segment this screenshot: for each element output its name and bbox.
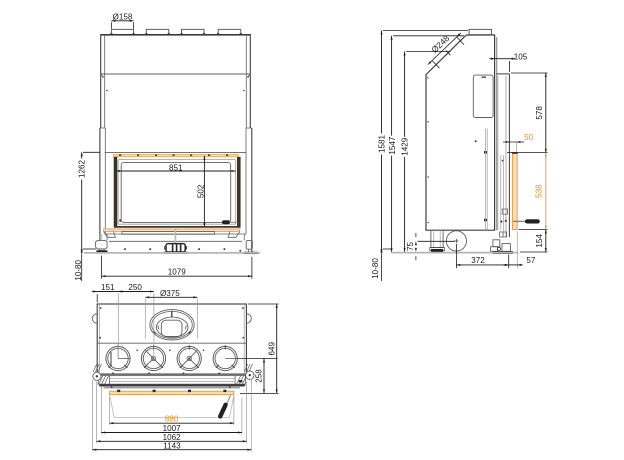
svg-text:250: 250: [128, 283, 142, 292]
svg-text:372: 372: [471, 256, 485, 265]
svg-text:1262: 1262: [78, 160, 87, 179]
svg-text:151: 151: [101, 283, 115, 292]
svg-text:Ø375: Ø375: [160, 289, 180, 298]
svg-text:880: 880: [165, 415, 179, 424]
svg-text:10-80: 10-80: [74, 259, 83, 280]
svg-text:502: 502: [197, 184, 206, 198]
svg-text:1429: 1429: [400, 137, 409, 156]
svg-text:57: 57: [526, 256, 536, 265]
svg-text:Ø158: Ø158: [113, 13, 133, 22]
svg-text:538: 538: [535, 184, 544, 198]
svg-text:1547: 1547: [388, 136, 397, 155]
svg-text:851: 851: [169, 163, 183, 172]
svg-text:649: 649: [267, 341, 276, 355]
svg-text:75: 75: [406, 242, 415, 252]
svg-text:50: 50: [524, 133, 534, 142]
svg-text:1079: 1079: [168, 267, 187, 276]
svg-text:1007: 1007: [163, 424, 182, 433]
svg-text:154: 154: [535, 234, 544, 248]
svg-text:578: 578: [535, 106, 544, 120]
svg-text:258: 258: [255, 369, 264, 383]
svg-text:1581: 1581: [378, 135, 387, 154]
svg-text:105: 105: [514, 53, 528, 62]
svg-text:1143: 1143: [163, 441, 181, 450]
svg-text:10-80: 10-80: [371, 258, 380, 279]
